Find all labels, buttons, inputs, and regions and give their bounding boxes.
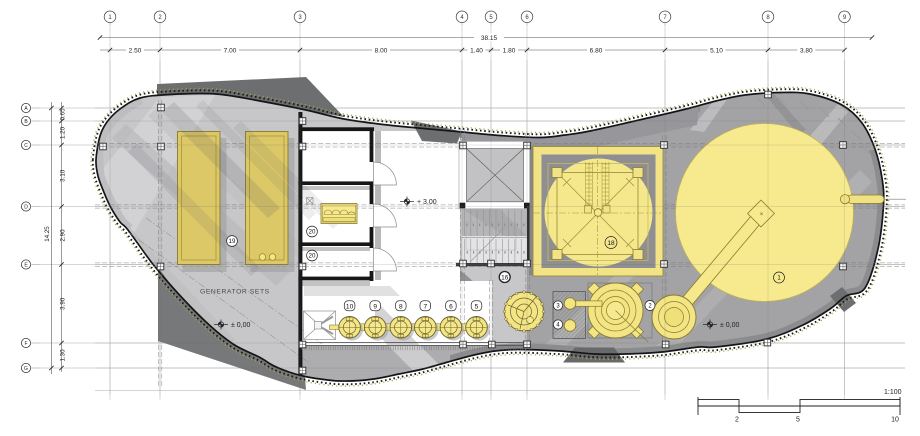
svg-text:7: 7 xyxy=(423,304,427,311)
svg-text:8.00: 8.00 xyxy=(375,48,388,55)
svg-text:20: 20 xyxy=(309,253,316,260)
svg-text:1.80: 1.80 xyxy=(503,48,516,55)
svg-text:5: 5 xyxy=(475,304,479,311)
svg-text:GENERATOR SETS: GENERATOR SETS xyxy=(200,289,270,296)
svg-text:± 0,00: ± 0,00 xyxy=(231,322,251,329)
svg-text:F: F xyxy=(24,341,27,347)
svg-text:38.15: 38.15 xyxy=(481,35,498,42)
svg-text:5.10: 5.10 xyxy=(710,48,723,55)
svg-text:19: 19 xyxy=(229,238,236,245)
svg-text:20: 20 xyxy=(309,229,316,236)
svg-text:18: 18 xyxy=(607,240,615,247)
svg-text:5: 5 xyxy=(796,417,800,424)
svg-text:7.00: 7.00 xyxy=(224,48,237,55)
svg-text:+ 3.00: + 3.00 xyxy=(417,199,437,206)
svg-text:6.80: 6.80 xyxy=(590,48,603,55)
svg-text:10: 10 xyxy=(891,417,899,424)
svg-text:3.10: 3.10 xyxy=(60,169,67,182)
svg-text:9: 9 xyxy=(373,304,377,311)
svg-text:0.65: 0.65 xyxy=(60,108,67,121)
svg-text:2.90: 2.90 xyxy=(60,229,67,242)
svg-text:C: C xyxy=(24,143,28,149)
svg-text:1.30: 1.30 xyxy=(60,349,67,362)
svg-text:1:100: 1:100 xyxy=(884,389,902,396)
svg-text:6: 6 xyxy=(449,304,453,311)
svg-text:± 0,00: ± 0,00 xyxy=(720,322,740,329)
svg-text:14.25: 14.25 xyxy=(44,226,51,242)
svg-text:8: 8 xyxy=(399,304,403,311)
svg-text:3.90: 3.90 xyxy=(60,297,67,310)
svg-text:2: 2 xyxy=(735,417,739,424)
svg-text:G: G xyxy=(24,366,28,372)
svg-text:16: 16 xyxy=(501,274,509,281)
svg-text:10: 10 xyxy=(346,304,354,311)
svg-text:1.40: 1.40 xyxy=(470,48,483,55)
svg-text:1.20: 1.20 xyxy=(60,126,67,139)
svg-text:2.50: 2.50 xyxy=(129,48,142,55)
svg-text:×: × xyxy=(760,212,764,218)
svg-text:3.80: 3.80 xyxy=(800,48,813,55)
svg-text:D: D xyxy=(24,205,28,211)
